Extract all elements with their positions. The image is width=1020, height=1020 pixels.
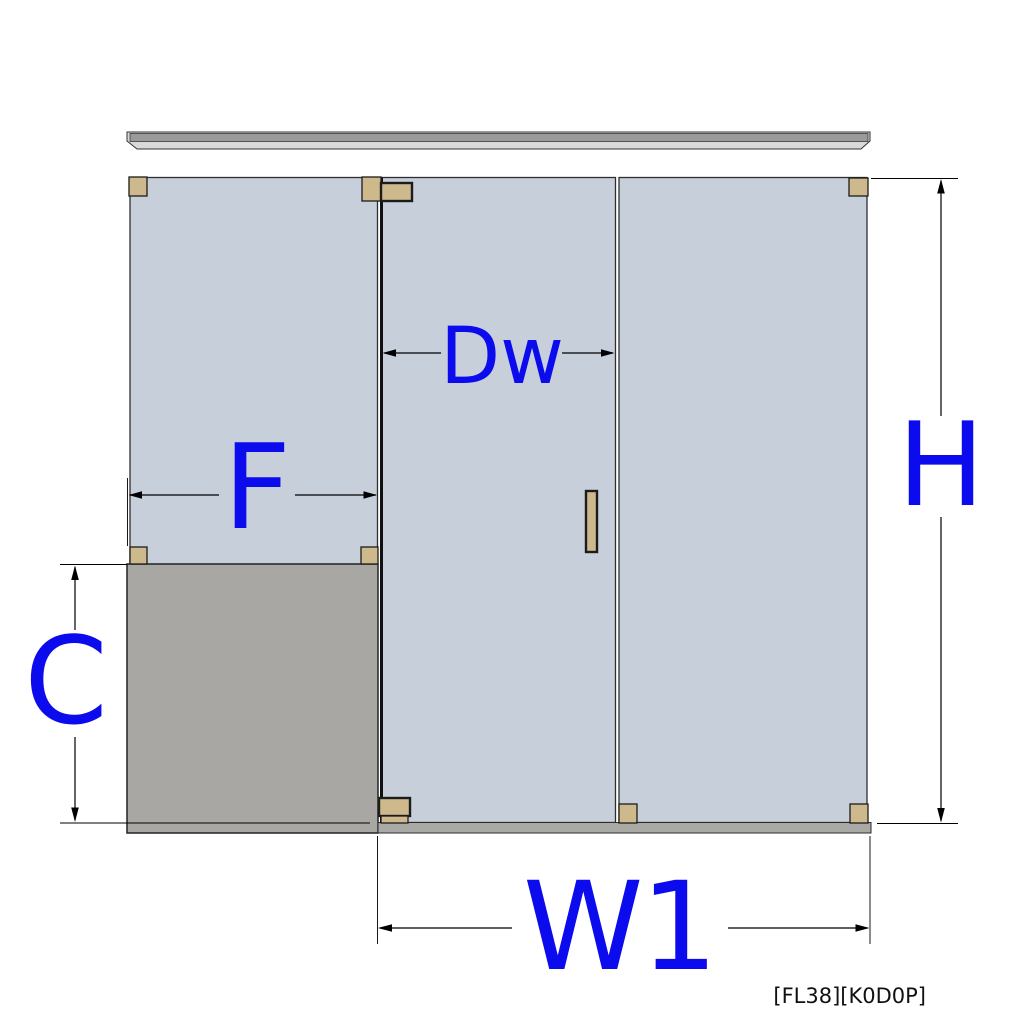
clamp-divider-bottom-icon <box>619 804 637 823</box>
arrowhead-down-icon <box>71 808 79 823</box>
right-fixed-panel-glass <box>619 178 867 823</box>
door-hinge-top-icon <box>381 183 412 201</box>
arrowhead-right-icon <box>856 924 870 932</box>
door-hinge-bottom-icon <box>379 798 410 816</box>
clamp-right-panel-top-icon <box>849 178 868 196</box>
top-track-bar <box>130 134 868 142</box>
drawing-code: [FL38][K0D0P] <box>773 984 926 1009</box>
door-panel-glass <box>382 178 616 823</box>
arrowhead-left-icon <box>378 924 392 932</box>
door-hinge-top-back-icon <box>362 177 381 201</box>
dim-label-buttress-height: C <box>24 623 108 743</box>
clamp-right-panel-bottom-icon <box>850 804 868 823</box>
arrowhead-up-icon <box>937 179 945 194</box>
clamp-left-panel-bottom-right-icon <box>361 547 378 564</box>
top-track <box>127 132 870 149</box>
dim-label-door-width: Dw <box>440 318 564 396</box>
dim-label-overall-height: H <box>897 408 984 524</box>
bottom-sill <box>378 823 871 834</box>
shower-configurator-diagram: Dw F H C W1 [FL38][K0D0P] <box>0 0 1020 1020</box>
arrowhead-up-icon <box>71 566 79 581</box>
door-hinge-bottom-foot-icon <box>381 816 408 823</box>
dim-label-fixed-panel-width: F <box>223 428 291 546</box>
clamp-left-panel-top-icon <box>129 177 147 196</box>
arrowhead-down-icon <box>937 808 945 823</box>
enclosure-drawing <box>0 0 1020 1020</box>
clamp-left-panel-bottom-left-icon <box>130 547 147 564</box>
door-handle-icon <box>586 491 597 552</box>
buttress-knee-wall <box>127 564 378 833</box>
dim-label-width-1: W1 <box>523 866 715 988</box>
